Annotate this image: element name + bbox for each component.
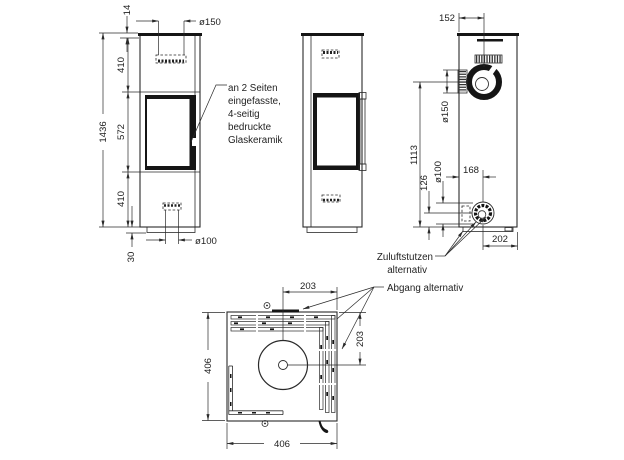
dim-front-base: 30 bbox=[126, 252, 137, 263]
side-window-glass bbox=[317, 98, 356, 166]
top-view: 203 203 406 406 bbox=[202, 281, 366, 450]
glass-note-line4: bedruckte bbox=[228, 122, 272, 133]
back-vent-slot bbox=[477, 39, 503, 42]
glass-note-line3: 4-seitig bbox=[228, 109, 260, 120]
front-plinth bbox=[147, 227, 195, 233]
technical-drawing-canvas: 1436 410 572 410 14 30 ø150 ø100 an 2 Se… bbox=[0, 0, 624, 460]
top-flue-center bbox=[279, 361, 288, 370]
side-view bbox=[301, 33, 366, 233]
dim-back-air-dia: ø100 bbox=[433, 161, 444, 183]
dim-back-flue-offset: 152 bbox=[439, 13, 455, 24]
dim-front-window: 572 bbox=[116, 124, 127, 140]
front-top-plate bbox=[138, 33, 202, 36]
stove-dimension-drawing: 1436 410 572 410 14 30 ø150 ø100 an 2 Se… bbox=[0, 0, 624, 460]
side-plinth bbox=[307, 227, 357, 233]
dim-front-air: ø100 bbox=[195, 236, 217, 247]
dim-top-half-depth: 203 bbox=[355, 331, 366, 347]
dim-top-depth: 406 bbox=[203, 358, 214, 374]
dim-front-flue: ø150 bbox=[199, 17, 221, 28]
dim-back-air-offset: 168 bbox=[463, 165, 479, 176]
side-top-plate bbox=[301, 33, 364, 36]
dim-top-width: 406 bbox=[274, 439, 290, 450]
back-flue-pipe bbox=[476, 78, 489, 91]
glass-note: an 2 Seiten eingefasste, 4-seitig bedruc… bbox=[191, 83, 283, 146]
front-window-glass bbox=[147, 99, 190, 166]
back-view: 152 ø150 1113 126 ø100 168 202 bbox=[409, 13, 519, 250]
air-note-line2: alternativ bbox=[387, 265, 427, 276]
front-view: 1436 410 572 410 14 30 ø150 ø100 bbox=[98, 4, 221, 262]
dim-front-total: 1436 bbox=[98, 121, 109, 142]
back-top-plate bbox=[457, 33, 519, 36]
dim-back-air-side: 202 bbox=[492, 234, 508, 245]
dim-front-top-plate: 14 bbox=[122, 4, 133, 15]
glass-note-line5: Glaskeramik bbox=[228, 135, 283, 146]
glass-note-line1: an 2 Seiten bbox=[228, 83, 278, 94]
dim-front-lower: 410 bbox=[116, 191, 127, 207]
air-note-line1: Zuluftstutzen bbox=[377, 252, 433, 263]
top-rear-stub bbox=[272, 310, 299, 313]
dim-front-upper: 410 bbox=[116, 57, 127, 73]
flue-alt-label: Abgang alternativ bbox=[387, 283, 463, 294]
dim-back-flue-dia: ø150 bbox=[440, 101, 451, 123]
top-door-handle bbox=[319, 421, 329, 433]
dim-back-air-height: 126 bbox=[419, 175, 430, 191]
front-window-latch bbox=[192, 138, 197, 146]
dim-top-half-width: 203 bbox=[300, 281, 316, 292]
glass-note-line2: eingefasste, bbox=[228, 96, 281, 107]
dim-back-flue-height: 1113 bbox=[409, 145, 420, 165]
